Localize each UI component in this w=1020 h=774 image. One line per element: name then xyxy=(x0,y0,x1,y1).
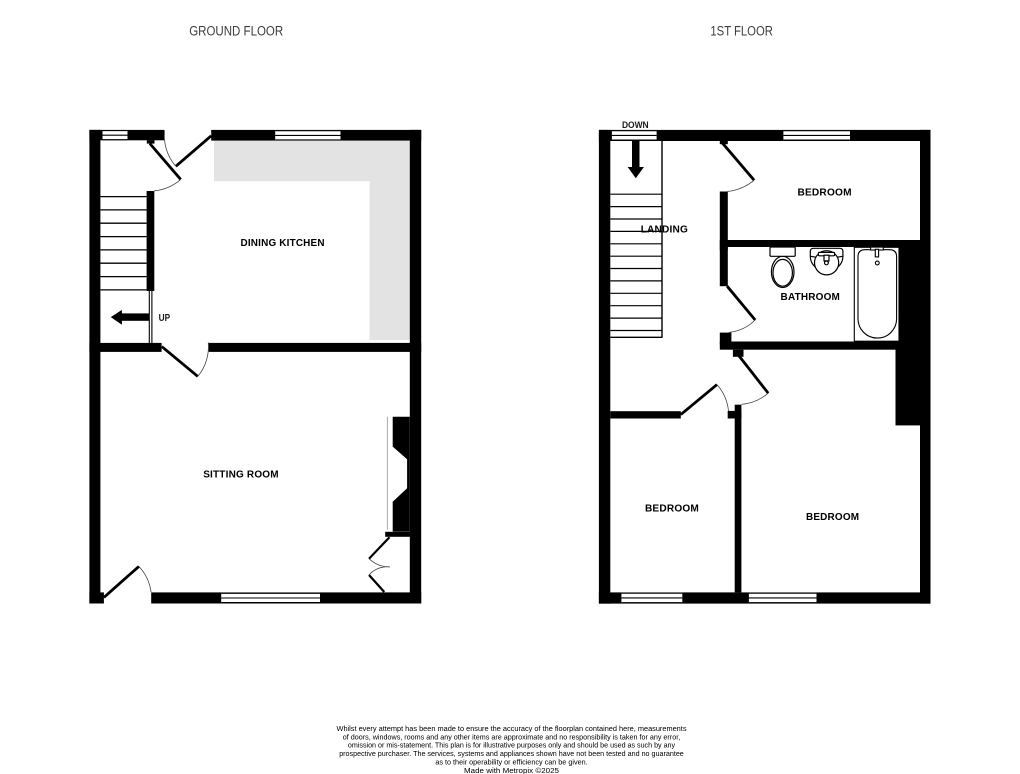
svg-text:BEDROOM: BEDROOM xyxy=(806,511,859,523)
svg-text:GROUND FLOOR: GROUND FLOOR xyxy=(189,24,283,39)
svg-text:UP: UP xyxy=(159,313,171,324)
svg-text:SITTING ROOM: SITTING ROOM xyxy=(203,469,279,481)
svg-text:LANDING: LANDING xyxy=(641,224,688,236)
svg-text:BEDROOM: BEDROOM xyxy=(797,187,851,199)
svg-text:Made with Metropix ©2025: Made with Metropix ©2025 xyxy=(464,766,559,774)
svg-text:BEDROOM: BEDROOM xyxy=(645,503,699,515)
svg-text:DOWN: DOWN xyxy=(622,120,649,131)
svg-text:1ST FLOOR: 1ST FLOOR xyxy=(710,24,773,39)
svg-text:BATHROOM: BATHROOM xyxy=(781,291,841,303)
svg-text:DINING KITCHEN: DINING KITCHEN xyxy=(241,237,325,249)
